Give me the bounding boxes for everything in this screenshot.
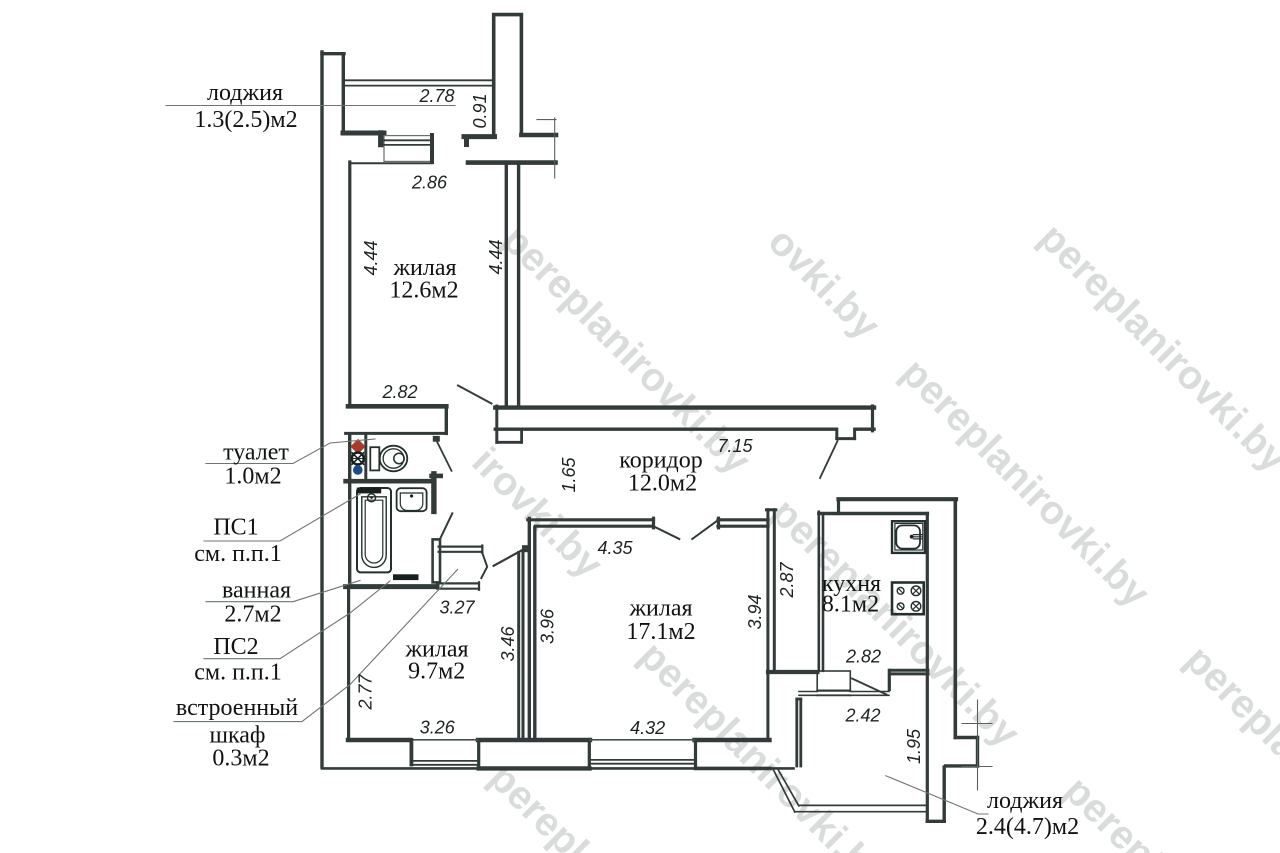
svg-text:лоджия: лоджия <box>207 80 283 106</box>
svg-text:лоджия: лоджия <box>987 788 1063 814</box>
svg-text:12.6м2: 12.6м2 <box>389 278 458 304</box>
svg-text:2.86: 2.86 <box>411 173 448 193</box>
svg-text:3.26: 3.26 <box>420 718 456 738</box>
svg-text:2.7м2: 2.7м2 <box>224 602 281 628</box>
svg-text:pereplanirovki.by: pereplanirovki.by <box>1177 637 1280 853</box>
svg-text:ПС1: ПС1 <box>213 515 258 541</box>
svg-text:2.87: 2.87 <box>777 562 797 599</box>
svg-text:см. п.п.1: см. п.п.1 <box>194 541 282 567</box>
svg-text:ovki.by: ovki.by <box>760 219 889 348</box>
svg-text:3.94: 3.94 <box>745 594 765 629</box>
svg-text:0.91: 0.91 <box>470 93 490 128</box>
svg-text:7.15: 7.15 <box>717 436 753 456</box>
svg-text:8.1м2: 8.1м2 <box>822 592 879 618</box>
svg-text:4.44: 4.44 <box>361 240 381 275</box>
svg-text:туалет: туалет <box>223 440 289 466</box>
svg-text:встроенный: встроенный <box>176 695 298 721</box>
svg-text:3.46: 3.46 <box>498 626 518 662</box>
svg-text:2.78: 2.78 <box>418 86 454 106</box>
svg-text:12.0м2: 12.0м2 <box>628 471 697 497</box>
svg-text:pereplanirovki.by: pereplanirovki.by <box>1056 768 1280 853</box>
svg-text:1.65: 1.65 <box>559 457 579 493</box>
svg-text:17.1м2: 17.1м2 <box>626 619 695 645</box>
svg-text:3.27: 3.27 <box>439 598 475 618</box>
svg-text:жилая: жилая <box>628 596 692 622</box>
svg-text:2.4(4.7)м2: 2.4(4.7)м2 <box>976 814 1079 840</box>
svg-text:2.82: 2.82 <box>381 382 417 402</box>
svg-text:4.32: 4.32 <box>630 718 665 738</box>
svg-text:1.3(2.5)м2: 1.3(2.5)м2 <box>194 107 297 133</box>
svg-text:pereplanirovki.by: pereplanirovki.by <box>1031 215 1280 481</box>
svg-text:1.95: 1.95 <box>904 728 924 764</box>
svg-text:2.77: 2.77 <box>356 674 376 711</box>
svg-text:3.96: 3.96 <box>538 608 558 644</box>
svg-text:pereplanirovki.by: pereplanirovki.by <box>893 350 1159 616</box>
svg-text:4.35: 4.35 <box>597 538 633 558</box>
svg-text:ПС2: ПС2 <box>213 634 258 660</box>
svg-text:4.44: 4.44 <box>486 239 506 274</box>
svg-text:ванная: ванная <box>222 578 291 604</box>
svg-text:2.82: 2.82 <box>845 647 881 667</box>
svg-text:см. п.п.1: см. п.п.1 <box>194 660 282 686</box>
svg-text:2.42: 2.42 <box>844 706 880 726</box>
svg-text:0.3м2: 0.3м2 <box>212 746 269 772</box>
svg-text:1.0м2: 1.0м2 <box>224 464 281 490</box>
svg-text:9.7м2: 9.7м2 <box>408 659 465 685</box>
